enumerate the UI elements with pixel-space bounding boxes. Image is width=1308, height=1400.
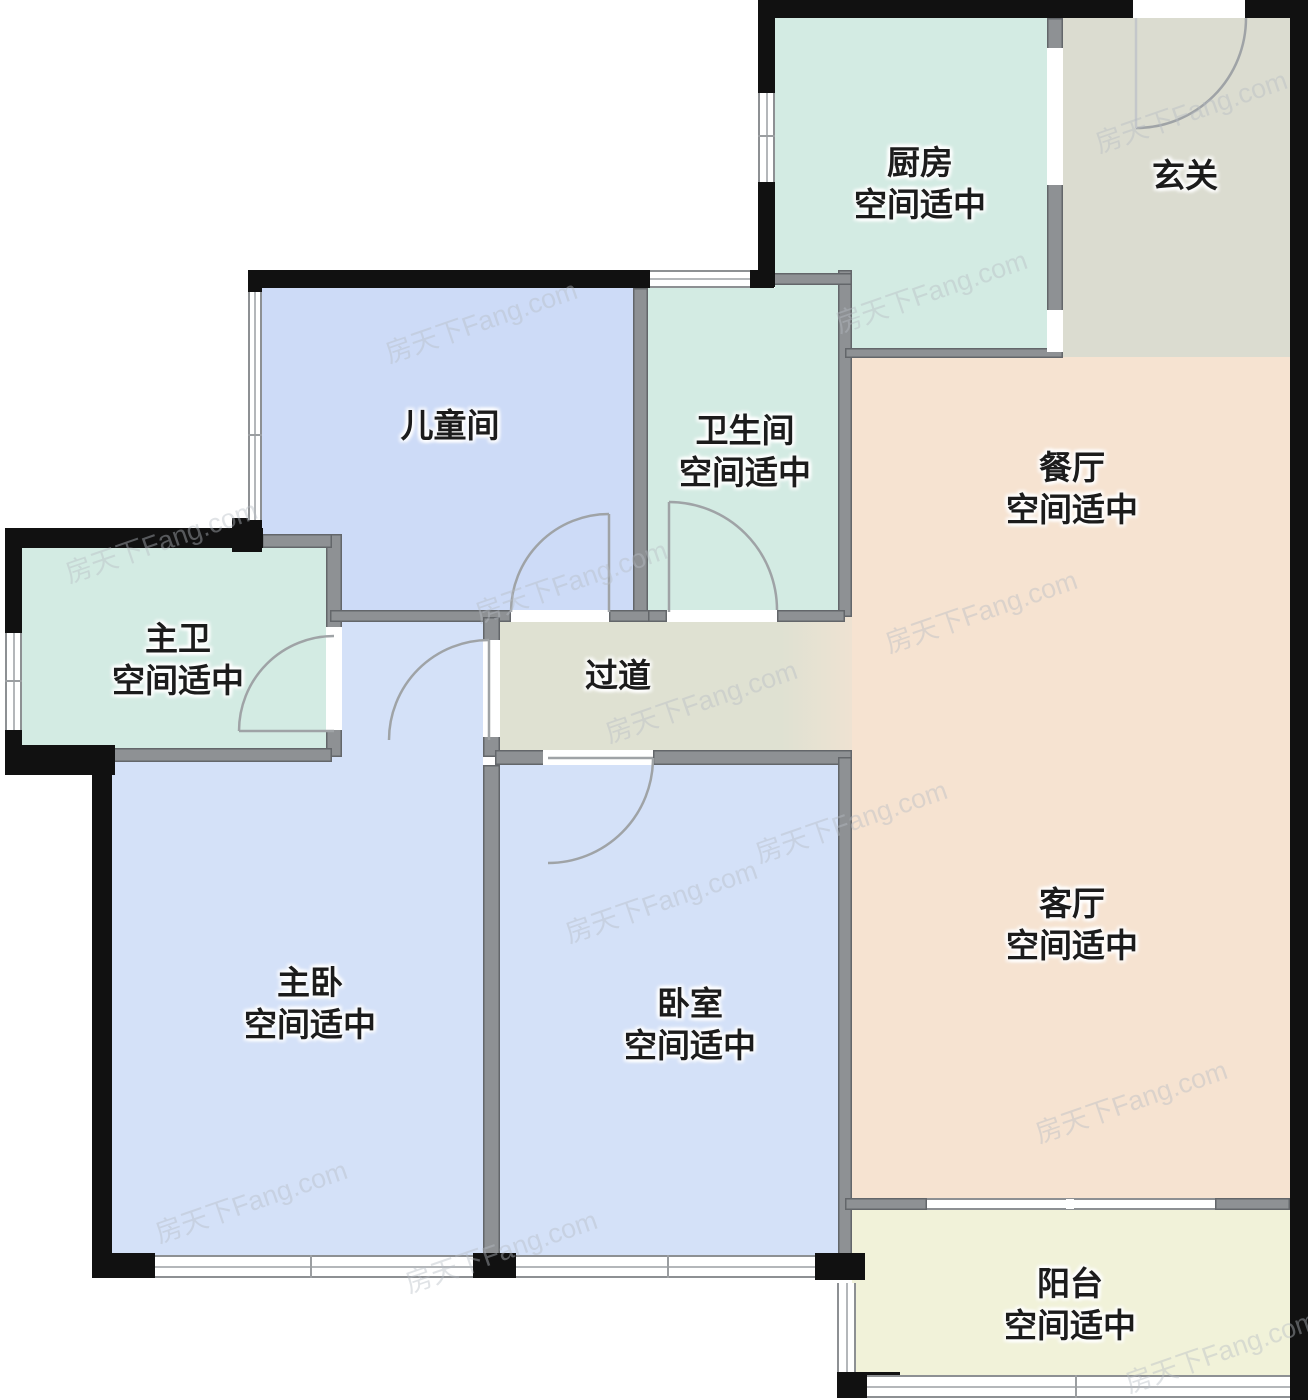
- entry-door-arc: [1136, 18, 1246, 128]
- floor-plan: 房天下Fang.com 房天下Fang.com 房天下Fang.com 房天下F…: [0, 0, 1308, 1400]
- bathroom-door-arc: [669, 502, 777, 610]
- master-bath-door-arc: [239, 636, 334, 731]
- room-label-living: 客厅空间适中: [1006, 883, 1138, 967]
- room-label-kitchen: 厨房空间适中: [854, 142, 986, 226]
- room-label-hallway: 过道: [585, 655, 651, 697]
- room-label-bedroom: 卧室空间适中: [624, 983, 756, 1067]
- master-suite-door-arc: [389, 640, 489, 740]
- room-label-dining: 餐厅空间适中: [1006, 447, 1138, 531]
- room-label-master-bedroom: 主卧空间适中: [244, 962, 376, 1046]
- room-label-kids-room: 儿童间: [401, 405, 500, 447]
- kids-room-door-arc: [511, 514, 609, 612]
- room-label-bathroom: 卫生间空间适中: [679, 410, 811, 494]
- room-label-master-bath: 主卫空间适中: [112, 618, 244, 702]
- bedroom-door-arc: [548, 758, 653, 863]
- room-label-foyer: 玄关: [1152, 155, 1218, 197]
- room-label-balcony: 阳台空间适中: [1004, 1263, 1136, 1347]
